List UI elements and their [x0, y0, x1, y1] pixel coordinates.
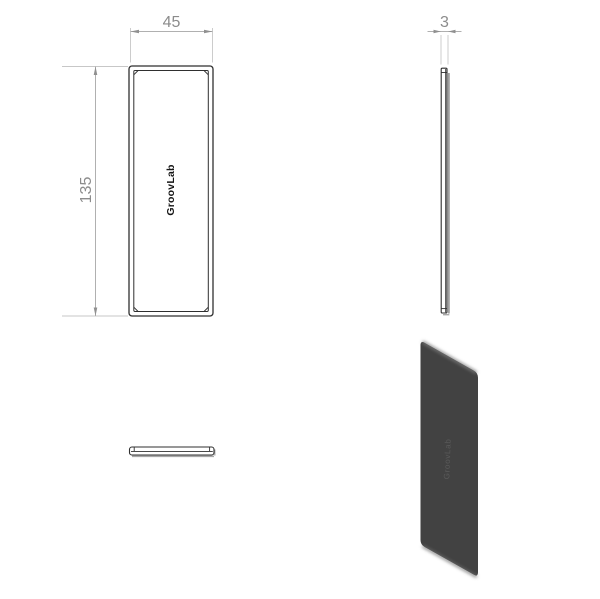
dimension-arrow [448, 30, 456, 34]
iso-logo-text: GroovLab [442, 438, 452, 479]
thickness-dimension: 3 [428, 14, 462, 65]
isometric-view: GroovLab [421, 342, 479, 577]
width-dimension-label: 45 [163, 14, 181, 31]
dimension-arrow [204, 30, 213, 34]
front-logo-text: GroovLab [165, 164, 177, 215]
height-dimension-label: 135 [78, 177, 95, 204]
thickness-dimension-label: 3 [440, 14, 449, 31]
dimension-arrow [131, 30, 140, 34]
height-dimension: 135 [62, 67, 128, 317]
dimension-arrow [94, 67, 98, 76]
technical-drawing: GroovLab 45 135 3 [0, 0, 600, 599]
dimension-arrow [94, 308, 98, 317]
front-view: GroovLab [129, 66, 213, 316]
bottom-view [130, 447, 215, 456]
width-dimension: 45 [131, 14, 213, 63]
side-view [441, 68, 449, 315]
drawing-canvas: GroovLab 45 135 3 [0, 0, 600, 599]
